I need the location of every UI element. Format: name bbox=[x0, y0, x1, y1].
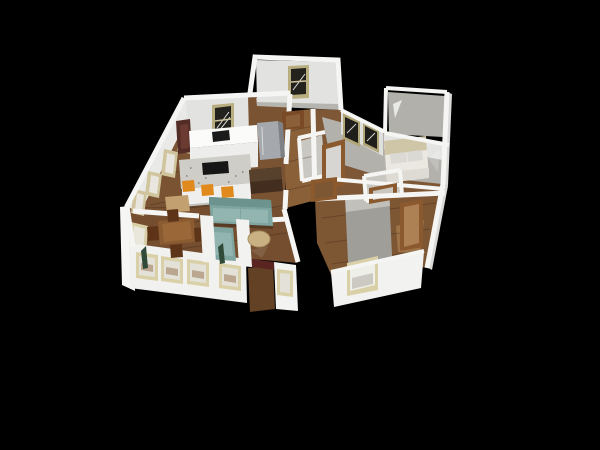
round-side-table bbox=[248, 231, 270, 247]
door-kitchen-west-panel bbox=[180, 124, 189, 149]
floorplan-canvas bbox=[0, 0, 600, 450]
bar-stool-3 bbox=[221, 186, 234, 198]
bed-1-pillow-right bbox=[407, 150, 423, 162]
bar-stool-1 bbox=[182, 180, 195, 192]
floor-porch bbox=[248, 265, 275, 312]
bed-1-pillow-left bbox=[390, 152, 407, 164]
window-front-5-glass bbox=[280, 273, 290, 293]
dining-chair-2 bbox=[167, 209, 179, 222]
fridge-front bbox=[257, 121, 281, 160]
wall-cap-hall-west-lower bbox=[285, 190, 286, 209]
door-bedroom-2-east-leaf bbox=[404, 204, 419, 247]
sofa-1-cushion-1 bbox=[213, 208, 240, 222]
floor-closet bbox=[388, 92, 445, 137]
island-cooktop bbox=[202, 161, 229, 175]
dining-table-top bbox=[162, 221, 192, 242]
dining-chair-1 bbox=[147, 226, 159, 241]
bar-stool-2 bbox=[201, 184, 214, 196]
floorplan-3d-viewport[interactable] bbox=[0, 0, 600, 450]
door-bedroom-2-north-opening bbox=[315, 181, 333, 199]
window-top-room-rail bbox=[291, 81, 306, 82]
door-top-room-opening bbox=[286, 114, 300, 128]
dining-chair-4 bbox=[170, 244, 183, 258]
kitchen-cooktop bbox=[212, 130, 230, 142]
